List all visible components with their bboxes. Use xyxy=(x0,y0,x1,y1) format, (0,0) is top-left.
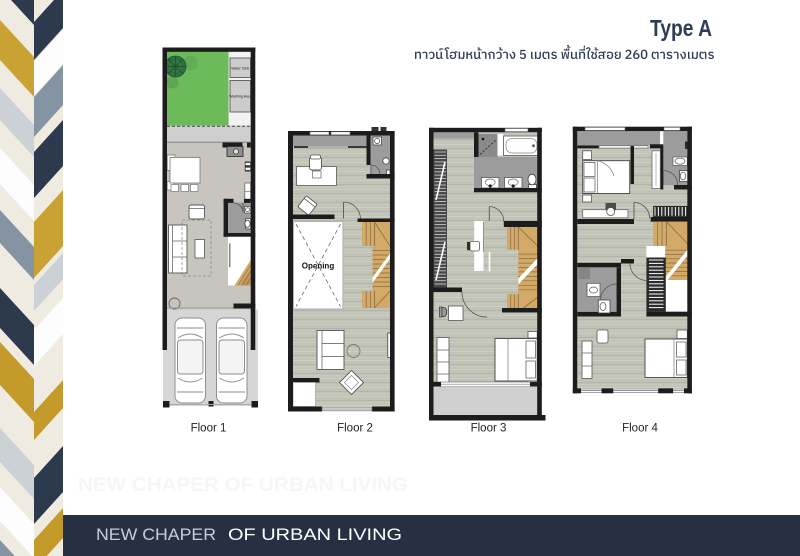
svg-text:OF URBAN LIVING: OF URBAN LIVING xyxy=(228,525,402,544)
svg-text:Floor 3: Floor 3 xyxy=(471,423,507,435)
svg-text:Type A: Type A xyxy=(650,15,712,41)
svg-text:Floor 2: Floor 2 xyxy=(337,423,373,435)
svg-text:Washing Area: Washing Area xyxy=(229,95,251,99)
svg-text:Floor 4: Floor 4 xyxy=(622,423,658,435)
svg-text:Floor 1: Floor 1 xyxy=(191,423,227,435)
svg-text:Water Tank: Water Tank xyxy=(231,67,249,71)
svg-text:NEW CHAPER OF URBAN LIVING: NEW CHAPER OF URBAN LIVING xyxy=(78,475,408,496)
svg-text:NEW CHAPER: NEW CHAPER xyxy=(96,525,216,544)
svg-text:Opening: Opening xyxy=(302,262,335,271)
